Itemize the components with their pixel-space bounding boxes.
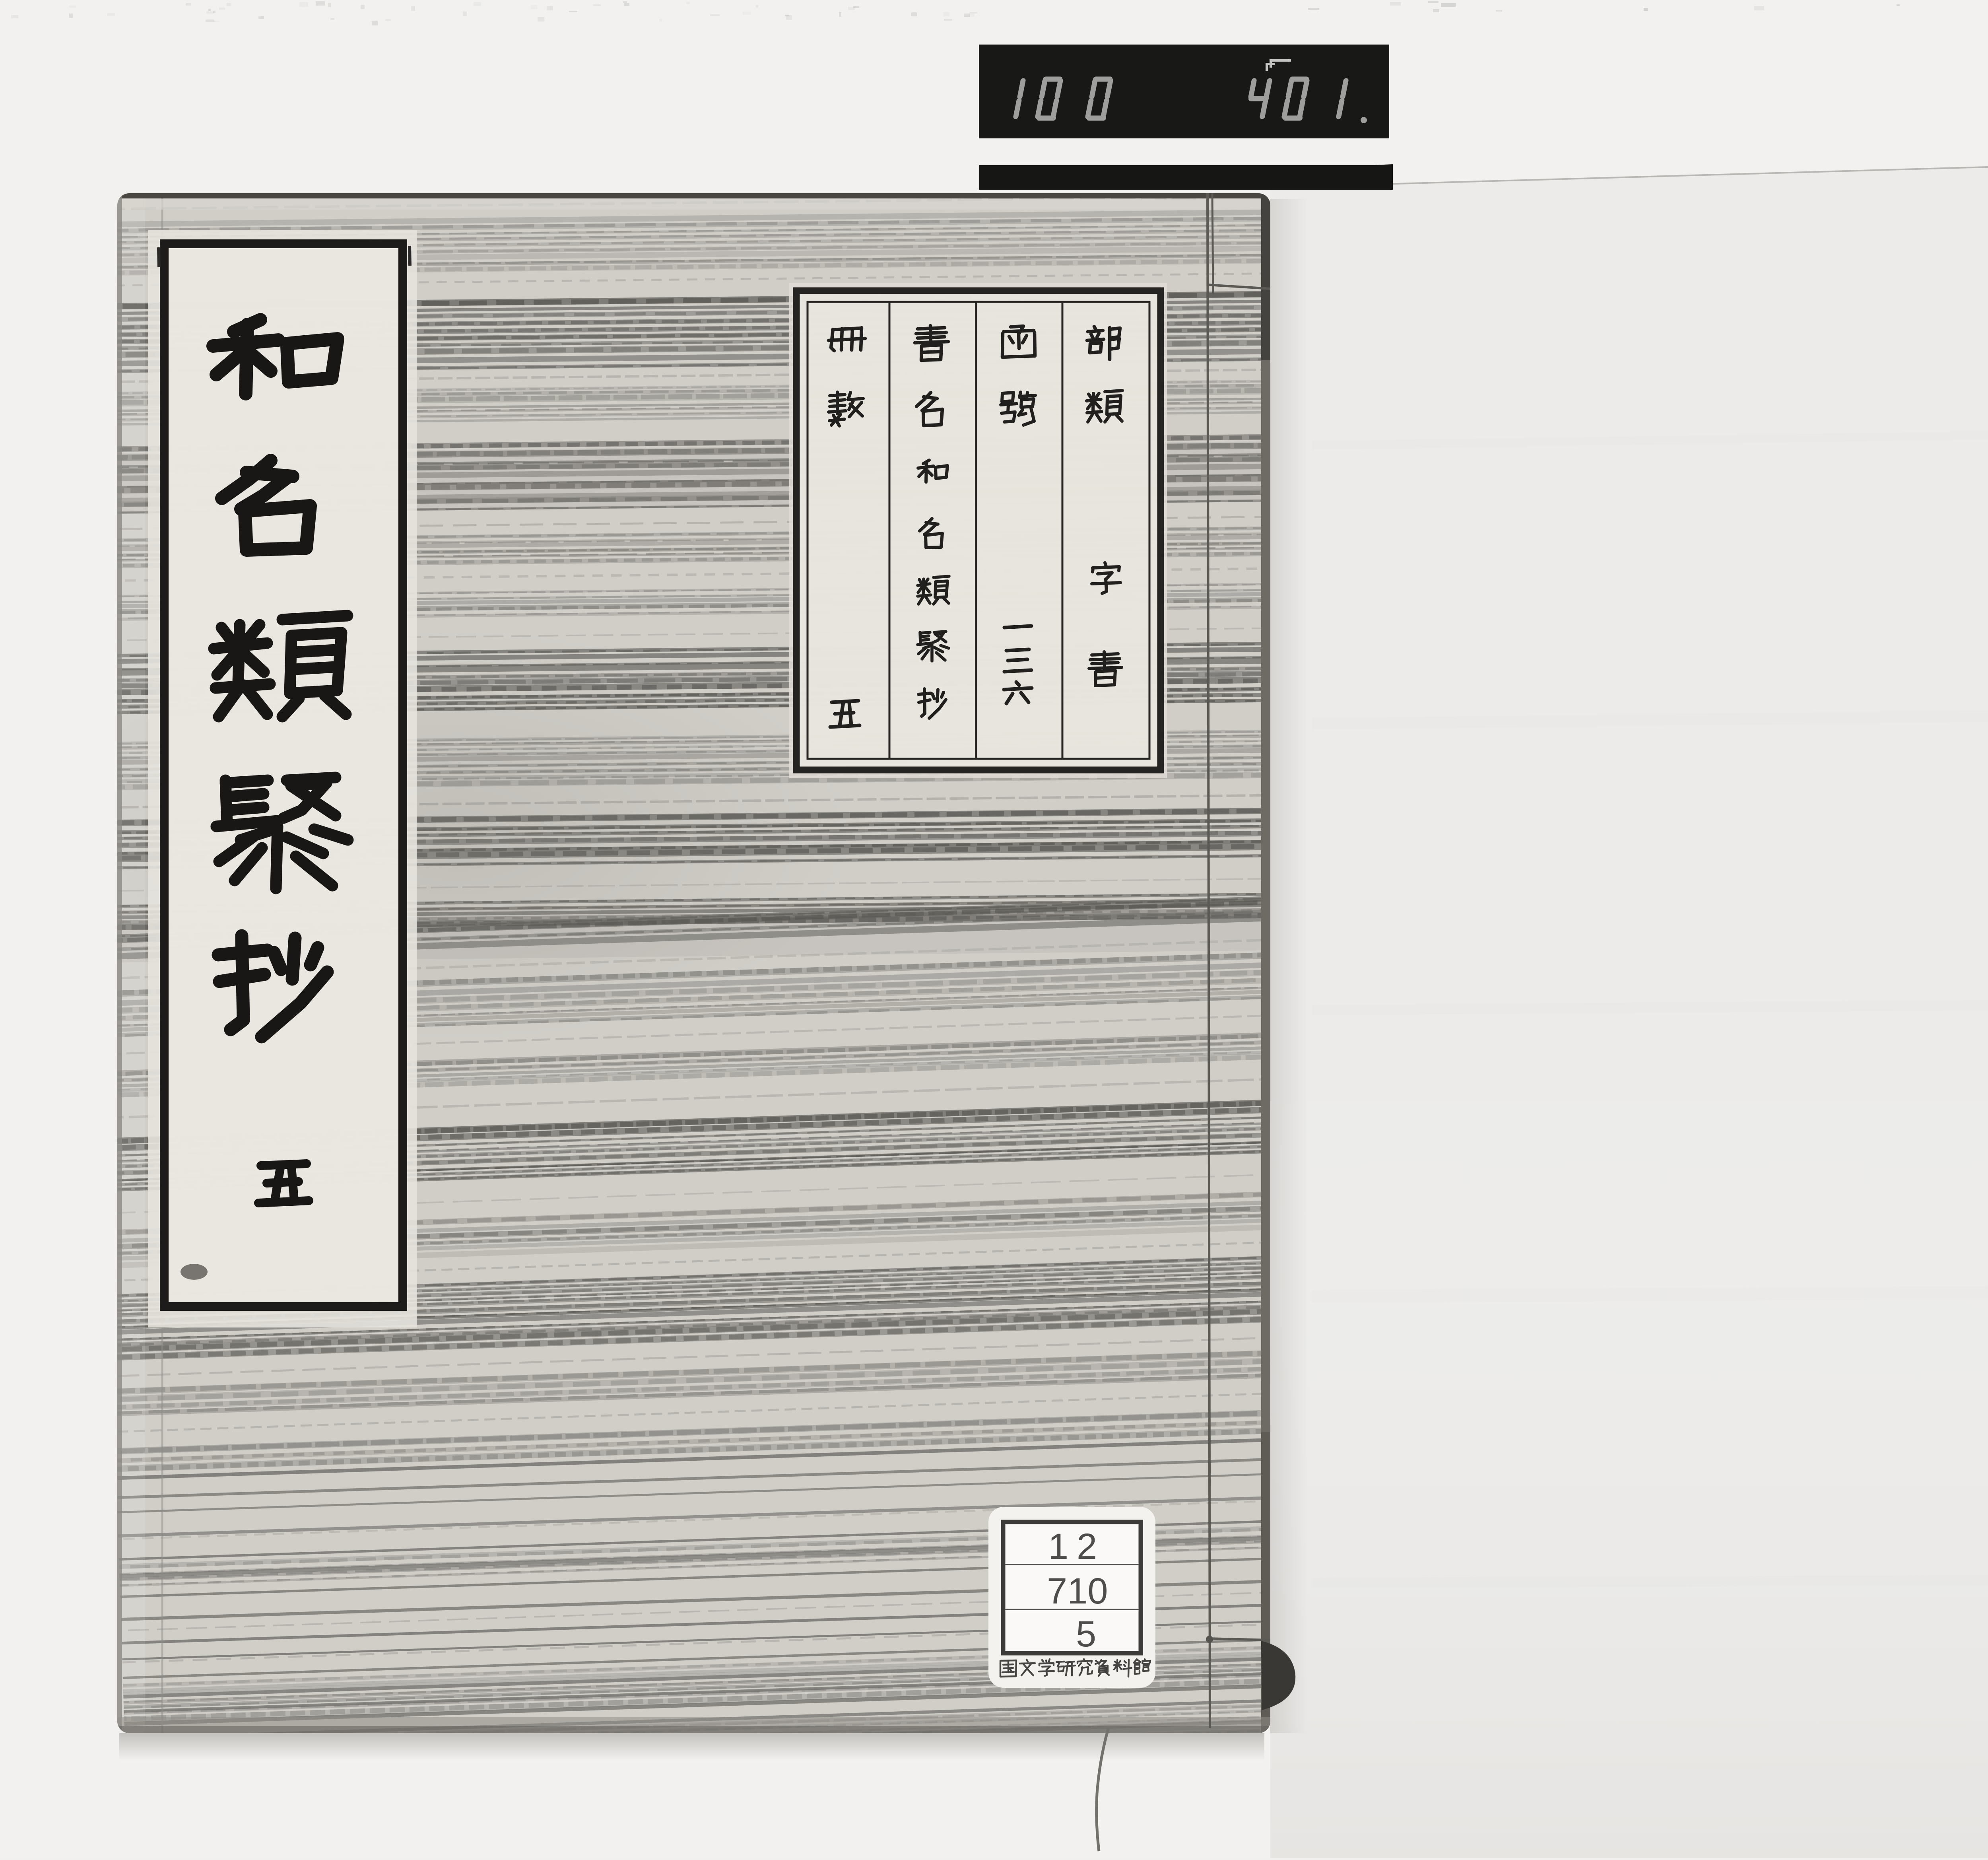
svg-text:710: 710	[1047, 1571, 1108, 1611]
svg-text:1: 1	[1048, 1526, 1068, 1567]
svg-text:5: 5	[1076, 1614, 1096, 1654]
svg-text:2: 2	[1077, 1526, 1097, 1567]
